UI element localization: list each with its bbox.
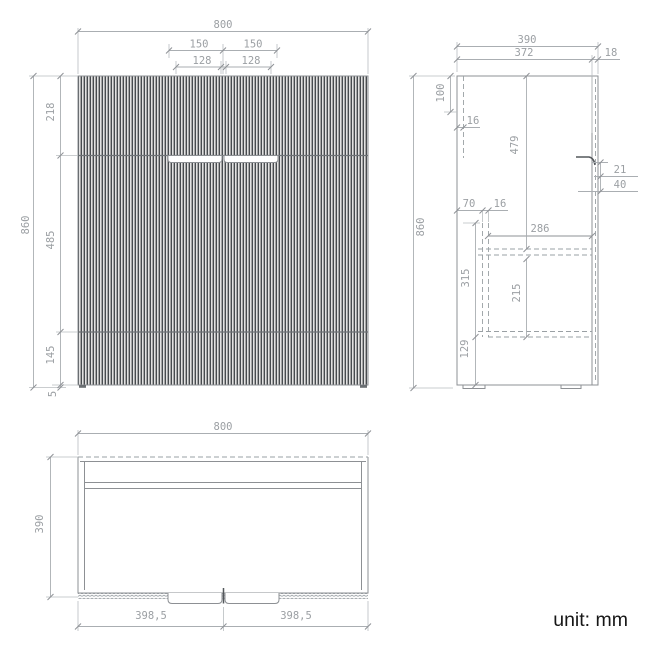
top-depth-label: 390 — [34, 515, 46, 534]
side-depth-label: 390 — [518, 34, 537, 46]
side-hidden-rail — [483, 223, 489, 337]
side-panel-thickness-label: 16 — [467, 115, 480, 127]
front-foot-left — [79, 385, 86, 388]
front-bottom-section-label: 145 — [45, 346, 57, 365]
top-handle-recess-left — [168, 593, 222, 604]
side-base-height-label: 129 — [459, 340, 471, 359]
side-top-recess-label: 100 — [435, 84, 447, 103]
front-groove-span-left-label: 150 — [190, 39, 209, 51]
front-recess-left-label: 128 — [193, 55, 212, 67]
top-handle-recess-right — [225, 593, 279, 604]
side-handle-lip-label: 21 — [614, 164, 627, 176]
top-door-right-label: 398,5 — [280, 610, 312, 622]
side-upper-section-label: 479 — [509, 136, 521, 155]
side-back-gap-label: 18 — [605, 47, 618, 59]
side-height-label: 860 — [415, 218, 427, 237]
side-shelf-section-label: 315 — [460, 269, 472, 288]
technical-drawing-page: 800 150 150 128 128 860 218 485 145 5 39… — [0, 0, 650, 650]
front-mid-section-label: 485 — [45, 231, 57, 250]
side-view: 390 372 18 860 100 16 479 21 40 70 16 28… — [409, 34, 638, 391]
side-rail-setback-label: 70 — [463, 198, 476, 210]
top-interior-lines — [85, 483, 362, 489]
front-width-label: 800 — [214, 19, 233, 31]
top-width-label: 800 — [214, 421, 233, 433]
front-handle-recess-left — [168, 156, 222, 163]
front-top-section-label: 218 — [45, 103, 57, 122]
side-body-depth-label: 372 — [515, 47, 534, 59]
side-hidden-shelves — [478, 249, 592, 337]
side-lower-clearance-label: 215 — [511, 284, 523, 303]
front-foot-right — [360, 385, 367, 388]
top-body-outline — [78, 457, 368, 593]
front-foot-height-label: 5 — [47, 391, 59, 397]
top-view: 800 390 398,5 398,5 — [34, 421, 371, 631]
side-dimension-lines — [414, 47, 639, 389]
front-handle-recess-right — [224, 156, 278, 163]
front-height-label: 860 — [20, 216, 32, 235]
unit-note: unit: mm — [553, 609, 628, 631]
front-fluted-panel — [78, 76, 368, 385]
side-feet — [463, 385, 581, 389]
vanity-dimension-drawing: 800 150 150 128 128 860 218 485 145 5 39… — [0, 0, 650, 650]
side-handle-clearance-label: 40 — [614, 179, 627, 191]
front-recess-right-label: 128 — [242, 55, 261, 67]
front-view: 800 150 150 128 128 860 218 485 145 5 — [20, 19, 371, 397]
top-door-left-label: 398,5 — [135, 610, 167, 622]
top-side-walls — [85, 462, 362, 591]
front-groove-span-right-label: 150 — [244, 39, 263, 51]
side-rail-thickness-label: 16 — [494, 198, 507, 210]
side-shelf-depth-label: 286 — [531, 223, 550, 235]
